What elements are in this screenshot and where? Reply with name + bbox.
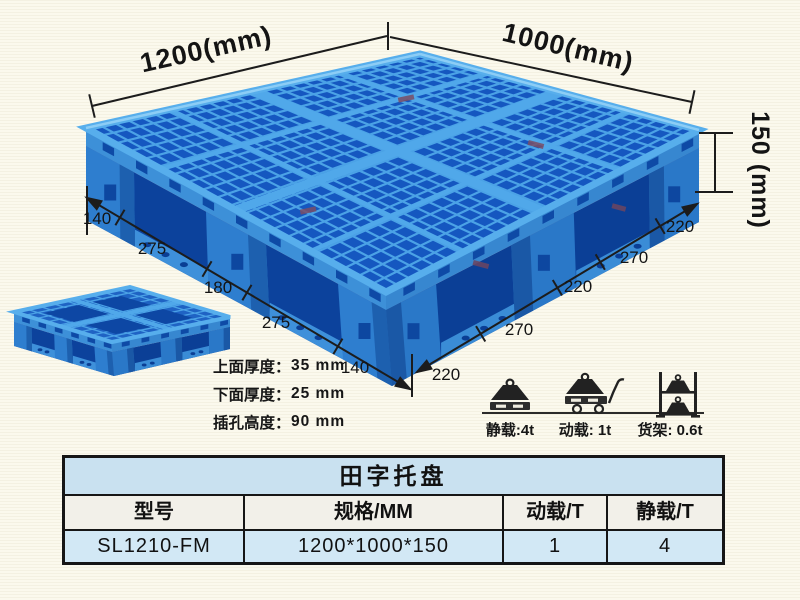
rack-load-label: 货架: 0.6t <box>637 419 702 440</box>
dim-right-5: 220 <box>432 365 460 384</box>
note-label: 插孔高度： <box>213 411 291 433</box>
dim-right-1: 220 <box>666 217 694 236</box>
header-model: 型号 <box>65 496 243 529</box>
note-label: 上面厚度： <box>213 355 291 377</box>
dim-right-3: 220 <box>564 277 592 296</box>
pallet-spec-sheet: 1200(mm) 1000(mm) 150 (mm) 140 275 180 2… <box>0 0 800 600</box>
dim-width-label: 1000(mm) <box>499 17 636 77</box>
dim-left-1: 140 <box>83 209 111 228</box>
note-bottom-thickness: 下面厚度： 25 mm <box>213 384 345 404</box>
dim-left-4: 275 <box>262 313 290 332</box>
dim-left-2: 275 <box>138 239 166 258</box>
header-static: 静载/T <box>606 496 722 529</box>
dim-right-4: 270 <box>505 320 533 339</box>
cell-spec: 1200*1000*150 <box>243 531 502 562</box>
dim-height-label: 150 (mm) <box>746 111 774 229</box>
table-row: SL1210-FM 1200*1000*150 1 4 <box>65 531 722 562</box>
cell-dynamic: 1 <box>502 531 606 562</box>
table-header-row: 型号 规格/MM 动载/T 静载/T <box>65 496 722 531</box>
note-top-thickness: 上面厚度： 35 mm <box>213 356 345 376</box>
note-value: 35 mm <box>291 357 345 375</box>
header-dynamic: 动载/T <box>502 496 606 529</box>
note-value: 90 mm <box>291 413 345 431</box>
spec-table: 田字托盘 型号 规格/MM 动载/T 静载/T SL1210-FM 1200*1… <box>62 455 725 565</box>
static-load-label: 静载:4t <box>486 419 534 440</box>
table-title: 田字托盘 <box>65 458 722 496</box>
rack-load-shelf-icon <box>656 371 700 418</box>
cell-static: 4 <box>606 531 722 562</box>
note-fork-height: 插孔高度： 90 mm <box>213 412 345 432</box>
dim-left-3: 180 <box>204 278 232 297</box>
static-load-weight-icon <box>486 378 534 414</box>
header-spec: 规格/MM <box>243 496 502 529</box>
small-pallet-illustration <box>14 287 230 376</box>
dim-length-label: 1200(mm) <box>137 20 274 78</box>
note-value: 25 mm <box>291 385 345 403</box>
dynamic-load-label: 动载: 1t <box>559 419 612 440</box>
cell-model: SL1210-FM <box>65 531 243 562</box>
note-label: 下面厚度： <box>213 383 291 405</box>
thickness-notes: 上面厚度： 35 mm 下面厚度： 25 mm 插孔高度： 90 mm <box>213 356 345 440</box>
dynamic-load-trolley-icon <box>560 371 626 415</box>
dim-right-2: 270 <box>620 248 648 267</box>
